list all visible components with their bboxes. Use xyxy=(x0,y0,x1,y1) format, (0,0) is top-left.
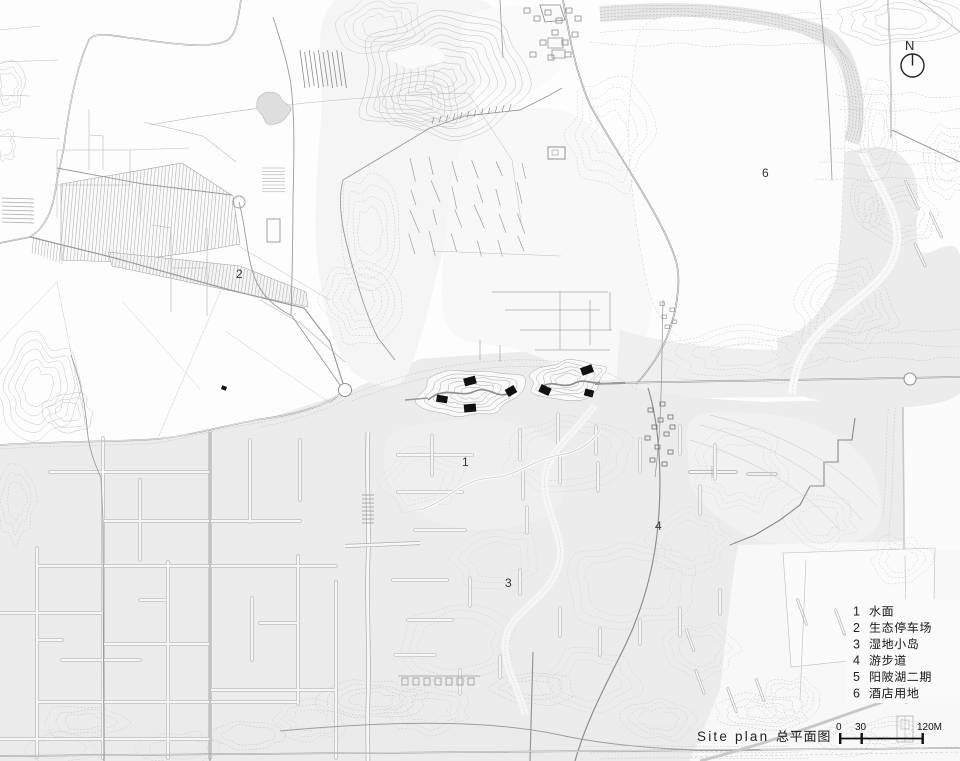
svg-text:1: 1 xyxy=(853,605,860,619)
svg-text:5: 5 xyxy=(853,670,860,684)
svg-text:0: 0 xyxy=(836,722,842,733)
svg-text:Site plan: Site plan xyxy=(697,729,769,744)
svg-text:30: 30 xyxy=(855,722,867,733)
svg-text:4: 4 xyxy=(853,654,860,668)
svg-text:3: 3 xyxy=(853,637,860,651)
svg-text:3: 3 xyxy=(505,576,512,590)
svg-text:N: N xyxy=(905,38,914,53)
svg-text:1: 1 xyxy=(462,455,469,469)
svg-text:4: 4 xyxy=(655,519,662,533)
svg-text:6: 6 xyxy=(762,166,769,180)
svg-text:2: 2 xyxy=(853,621,860,635)
svg-text:120M: 120M xyxy=(917,722,942,733)
svg-text:6: 6 xyxy=(853,687,860,701)
svg-text:2: 2 xyxy=(236,267,243,281)
